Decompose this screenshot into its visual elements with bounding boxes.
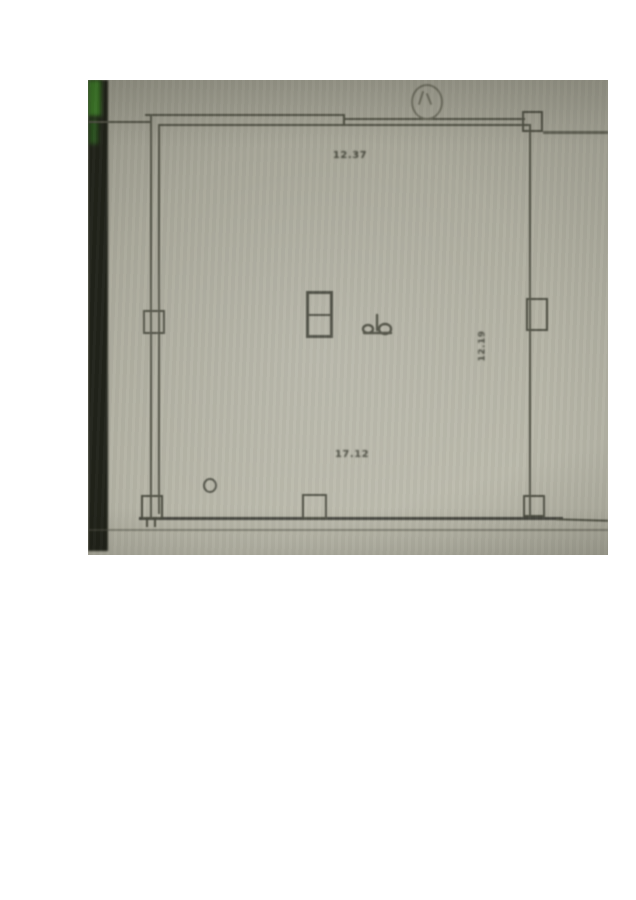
north-symbol-needle-2	[426, 93, 432, 105]
floor-plan-photo: 12.37 17.12 12.19	[88, 80, 608, 555]
column-box-right-bottom	[523, 495, 545, 517]
dimension-label-right-text: 12.19	[477, 331, 487, 362]
left-extension-line	[88, 121, 152, 123]
column-box-right-middle	[526, 298, 548, 331]
bottom-ground-line	[88, 529, 608, 531]
top-wall-outer-right	[343, 118, 525, 120]
dimension-label-bottom: 17.12	[292, 449, 412, 460]
dimension-label-right: 12.19	[460, 324, 504, 368]
column-box-left-middle	[143, 310, 165, 334]
north-symbol-icon	[411, 84, 443, 120]
center-shaft-symbol	[306, 291, 333, 338]
fixture-mark-icon	[360, 312, 396, 338]
bottom-corner-tick-right	[154, 520, 156, 527]
bottom-wall-extension	[556, 518, 608, 521]
top-wall-inner	[159, 124, 531, 126]
top-wall-outer-left	[145, 114, 345, 116]
right-extension-line	[543, 131, 608, 134]
center-shaft-divider	[309, 314, 330, 317]
dimension-label-top: 12.37	[290, 150, 410, 161]
column-box-left-bottom	[141, 495, 163, 519]
small-ring-icon	[203, 478, 217, 493]
bottom-corner-tick-left	[146, 520, 148, 527]
column-box-right-top	[522, 111, 543, 132]
floor-plan-drawing: 12.37 17.12 12.19	[88, 80, 608, 555]
north-symbol-needle	[418, 91, 424, 105]
bottom-wall	[139, 517, 563, 520]
column-box-bottom-middle	[302, 494, 327, 519]
